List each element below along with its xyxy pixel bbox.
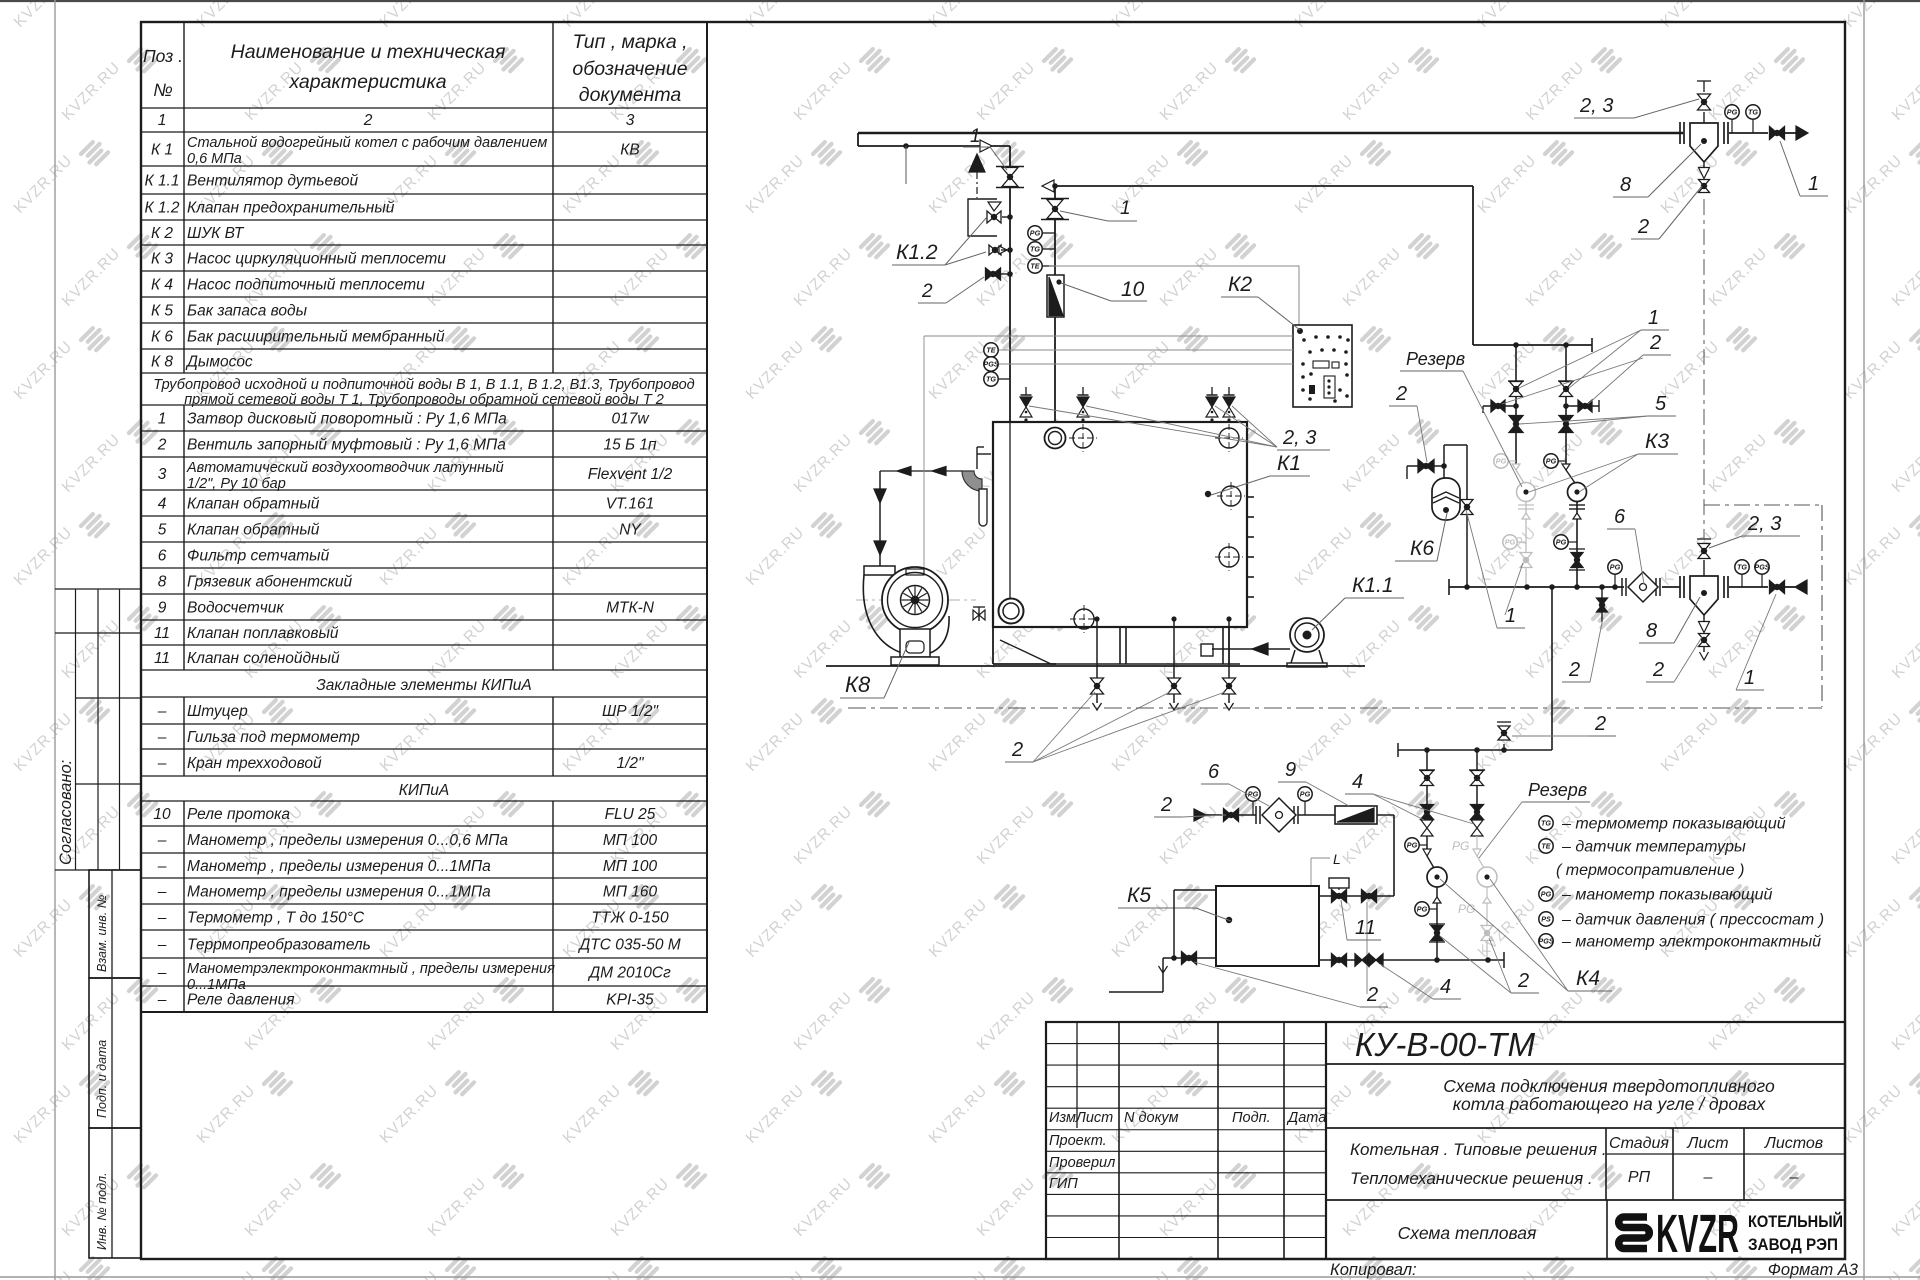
svg-text:К 2: К 2 xyxy=(151,225,173,242)
svg-text:PG: PG xyxy=(1610,563,1621,572)
svg-text:PG: PG xyxy=(1546,457,1557,466)
svg-text:8: 8 xyxy=(158,574,167,591)
svg-text:–: – xyxy=(157,937,167,954)
svg-text:Поз .: Поз . xyxy=(143,46,183,66)
svg-text:0,6 МПа: 0,6 МПа xyxy=(187,151,242,167)
svg-text:котла работающего на угле / др: котла работающего на угле / дровах xyxy=(1453,1094,1767,1114)
svg-text:ШУК ВТ: ШУК ВТ xyxy=(187,225,245,242)
svg-text:2: 2 xyxy=(157,437,167,454)
svg-text:Фильтр сетчатый: Фильтр сетчатый xyxy=(187,548,330,565)
svg-text:3: 3 xyxy=(626,112,635,129)
svg-text:11: 11 xyxy=(154,625,170,642)
svg-text:К3: К3 xyxy=(1645,430,1669,453)
svg-text:МП 100: МП 100 xyxy=(603,832,658,849)
svg-text:9: 9 xyxy=(1285,759,1296,781)
svg-text:–: – xyxy=(157,884,167,901)
svg-text:Манометрэлектроконтактный , п: Манометрэлектроконтактный , пределы изме… xyxy=(187,961,555,977)
svg-text:Клапан предохранительный: Клапан предохранительный xyxy=(187,200,395,217)
svg-text:К 1: К 1 xyxy=(151,142,173,159)
svg-text:–: – xyxy=(157,858,167,875)
svg-text:Стадия: Стадия xyxy=(1609,1135,1669,1152)
svg-text:TG: TG xyxy=(1541,819,1551,828)
svg-text:2: 2 xyxy=(1160,794,1172,816)
svg-text:К5: К5 xyxy=(1127,884,1151,907)
svg-text:РП: РП xyxy=(1628,1169,1651,1186)
svg-text:4: 4 xyxy=(158,496,167,513)
svg-text:– датчик температуры: – датчик температуры xyxy=(1561,839,1746,856)
svg-text:Манометр , пределы измерения: Манометр , пределы измерения 0...1МПа xyxy=(187,884,491,901)
svg-text:прямой сетевой воды Т 1, Тру: прямой сетевой воды Т 1, Трубопроводы об… xyxy=(184,392,664,408)
svg-text:характеристика: характеристика xyxy=(288,71,446,93)
svg-text:6: 6 xyxy=(1614,506,1626,528)
svg-text:К 8: К 8 xyxy=(151,354,173,371)
svg-text:2: 2 xyxy=(1594,713,1606,735)
svg-text:11: 11 xyxy=(1355,917,1376,939)
svg-text:VT.161: VT.161 xyxy=(606,496,655,513)
svg-text:KVZR: KVZR xyxy=(1656,1204,1739,1264)
svg-text:PG: PG xyxy=(1300,790,1311,799)
svg-text:2: 2 xyxy=(1517,970,1529,992)
svg-text:Подп.: Подп. xyxy=(1232,1110,1271,1126)
svg-text:PG: PG xyxy=(1030,229,1041,238)
svg-text:Тепломеханические решения .: Тепломеханические решения . xyxy=(1350,1169,1593,1188)
svg-text:–: – xyxy=(1789,1169,1799,1186)
svg-text:9: 9 xyxy=(158,600,167,617)
svg-text:Насос подпиточный теплосети: Насос подпиточный теплосети xyxy=(187,277,425,294)
svg-text:Штуцер: Штуцер xyxy=(187,703,248,720)
svg-text:Формат А3: Формат А3 xyxy=(1768,1261,1859,1279)
svg-text:NY: NY xyxy=(619,522,642,539)
svg-text:К 4: К 4 xyxy=(151,277,173,294)
svg-text:К 5: К 5 xyxy=(151,303,173,320)
svg-text:Клапан поплавковый: Клапан поплавковый xyxy=(187,625,339,642)
svg-text:– манометр показывающий: – манометр показывающий xyxy=(1561,887,1773,904)
svg-text:–: – xyxy=(157,832,167,849)
svg-text:1: 1 xyxy=(158,411,167,428)
svg-text:МП 160: МП 160 xyxy=(603,884,658,901)
svg-text:PGS: PGS xyxy=(1538,937,1553,946)
svg-text:К1.1: К1.1 xyxy=(1352,574,1394,597)
svg-text:PGS: PGS xyxy=(1754,563,1769,572)
svg-text:Схема тепловая: Схема тепловая xyxy=(1398,1223,1537,1243)
svg-text:Проект.: Проект. xyxy=(1049,1133,1107,1149)
svg-text:4: 4 xyxy=(1440,976,1451,998)
svg-text:Бак расширительный мембранный: Бак расширительный мембранный xyxy=(187,329,445,346)
svg-text:ДМ 2010Сг: ДМ 2010Сг xyxy=(587,965,671,982)
svg-text:10: 10 xyxy=(1121,278,1145,301)
svg-text:2: 2 xyxy=(1366,984,1378,1006)
svg-text:PGS: PGS xyxy=(983,360,998,369)
svg-text:Водосчетчик: Водосчетчик xyxy=(187,600,284,617)
svg-text:2, 3: 2, 3 xyxy=(1579,95,1613,117)
svg-text:15 Б 1п: 15 Б 1п xyxy=(603,437,657,454)
svg-text:Схема подключения твердотоплив: Схема подключения твердотопливного xyxy=(1443,1076,1775,1096)
svg-text:N докум: N докум xyxy=(1124,1110,1179,1126)
svg-text:8: 8 xyxy=(1646,620,1657,642)
svg-text:КУ-В-00-ТМ: КУ-В-00-ТМ xyxy=(1355,1026,1536,1063)
svg-text:2: 2 xyxy=(1011,739,1023,761)
svg-text:Лист: Лист xyxy=(1686,1135,1728,1152)
svg-text:2: 2 xyxy=(1568,659,1580,681)
svg-text:L: L xyxy=(1333,851,1341,867)
svg-text:PS: PS xyxy=(1541,915,1551,924)
svg-text:–: – xyxy=(157,755,167,772)
svg-text:Дата: Дата xyxy=(1286,1110,1326,1126)
svg-text:PG: PG xyxy=(1505,538,1516,547)
svg-text:Грязевик абонентский: Грязевик абонентский xyxy=(187,574,353,591)
svg-text:ГИП: ГИП xyxy=(1049,1176,1078,1192)
svg-text:ДТС 035-50 М: ДТС 035-50 М xyxy=(577,937,680,954)
svg-text:К1.2: К1.2 xyxy=(896,241,938,264)
svg-text:Подп. и дата: Подп. и дата xyxy=(95,1040,109,1118)
svg-text:№: № xyxy=(153,80,173,100)
svg-text:TE: TE xyxy=(1541,842,1550,851)
svg-text:PG: PG xyxy=(1417,905,1428,914)
svg-text:К6: К6 xyxy=(1410,537,1434,560)
svg-text:– термометр показывающий: – термометр показывающий xyxy=(1561,816,1786,833)
svg-text:2, 3: 2, 3 xyxy=(1282,427,1316,449)
svg-text:2: 2 xyxy=(1395,383,1407,405)
svg-text:К 3: К 3 xyxy=(151,251,173,268)
svg-text:Манометр , пределы измерения: Манометр , пределы измерения 0...1МПа xyxy=(187,858,491,875)
svg-text:МТК-N: МТК-N xyxy=(606,600,655,617)
svg-text:Копировал:: Копировал: xyxy=(1330,1261,1417,1279)
svg-text:4: 4 xyxy=(1352,771,1363,793)
svg-text:– манометр электроконтактный: – манометр электроконтактный xyxy=(1561,934,1821,951)
svg-text:TG: TG xyxy=(1748,108,1758,117)
svg-text:Flexvent 1/2: Flexvent 1/2 xyxy=(588,466,673,483)
svg-text:Проверил: Проверил xyxy=(1049,1155,1115,1171)
svg-text:PG: PG xyxy=(1496,457,1507,466)
svg-text:Стальной водогрейный котел с р: Стальной водогрейный котел с рабочим дав… xyxy=(187,135,547,151)
svg-text:–: – xyxy=(1703,1169,1713,1186)
svg-text:6: 6 xyxy=(1208,761,1220,783)
svg-text:2: 2 xyxy=(1637,216,1649,238)
svg-text:–: – xyxy=(157,910,167,927)
svg-text:Клапан соленойдный: Клапан соленойдный xyxy=(187,650,340,667)
svg-text:– датчик давления ( прессост: – датчик давления ( прессостат ) xyxy=(1561,912,1824,929)
svg-text:Листов: Листов xyxy=(1764,1135,1823,1152)
svg-text:KPI-35: KPI-35 xyxy=(606,992,654,1009)
svg-text:6: 6 xyxy=(158,548,167,565)
svg-text:PG: PG xyxy=(1452,839,1469,853)
svg-text:TE: TE xyxy=(986,346,995,355)
svg-text:Затвор дисковый поворотный :: Затвор дисковый поворотный : Ру 1,6 МПа xyxy=(187,411,507,428)
svg-text:Манометр , пределы измерения: Манометр , пределы измерения 0...0,6 МПа xyxy=(187,832,508,849)
svg-text:документа: документа xyxy=(579,84,682,106)
svg-text:Кран трехходовой: Кран трехходовой xyxy=(187,755,322,772)
svg-text:ЗАВОД РЭП: ЗАВОД РЭП xyxy=(1748,1235,1838,1254)
svg-text:Реле протока: Реле протока xyxy=(187,806,290,823)
svg-text:Насос циркуляционный теплосети: Насос циркуляционный теплосети xyxy=(187,251,446,268)
svg-text:1: 1 xyxy=(1648,307,1659,329)
svg-text:К1: К1 xyxy=(1277,452,1301,475)
svg-text:1/2", Ру 10 бар: 1/2", Ру 10 бар xyxy=(187,476,286,492)
svg-text:К8: К8 xyxy=(845,672,871,697)
svg-text:–: – xyxy=(157,965,167,982)
svg-text:3: 3 xyxy=(158,466,167,483)
svg-text:К2: К2 xyxy=(1228,273,1252,296)
svg-text:1: 1 xyxy=(158,112,167,129)
svg-text:FLU 25: FLU 25 xyxy=(605,806,656,823)
svg-text:Террмопреобразователь: Террмопреобразователь xyxy=(187,937,371,954)
svg-text:PG: PG xyxy=(1407,841,1418,850)
svg-text:2: 2 xyxy=(363,112,373,129)
svg-text:К 1.2: К 1.2 xyxy=(145,200,180,217)
svg-text:обозначение: обозначение xyxy=(572,58,687,80)
svg-text:8: 8 xyxy=(1620,174,1631,196)
svg-text:Резерв: Резерв xyxy=(1528,780,1587,800)
svg-text:К 1.1: К 1.1 xyxy=(145,173,180,190)
svg-text:К4: К4 xyxy=(1576,967,1600,990)
svg-text:2: 2 xyxy=(921,281,933,302)
svg-text:ИзмЛист: ИзмЛист xyxy=(1049,1110,1113,1126)
svg-text:017w: 017w xyxy=(611,411,650,428)
svg-text:Клапан обратный: Клапан обратный xyxy=(187,496,320,513)
svg-text:Закладные элементы КИПиА: Закладные элементы КИПиА xyxy=(316,677,532,694)
svg-text:Гильза под термометр: Гильза под термометр xyxy=(187,729,360,746)
svg-text:2: 2 xyxy=(1652,659,1664,681)
svg-text:Котельная . Типовые решения .: Котельная . Типовые решения . xyxy=(1350,1140,1607,1159)
svg-text:КВ: КВ xyxy=(620,142,639,159)
svg-text:1: 1 xyxy=(1808,173,1819,195)
svg-text:К 6: К 6 xyxy=(151,329,173,346)
svg-text:КОТЕЛЬНЫЙ: КОТЕЛЬНЫЙ xyxy=(1748,1212,1843,1231)
svg-text:1: 1 xyxy=(1120,198,1131,219)
svg-text:PG: PG xyxy=(1556,538,1567,547)
svg-text:TE: TE xyxy=(1030,262,1039,271)
svg-text:Автоматический воздухоотводчик: Автоматический воздухоотводчик латунный xyxy=(186,460,504,476)
svg-text:Вентилятор дутьевой: Вентилятор дутьевой xyxy=(187,173,359,190)
svg-text:Клапан обратный: Клапан обратный xyxy=(187,522,320,539)
svg-text:Термометр , Т до 150°С: Термометр , Т до 150°С xyxy=(187,910,365,927)
svg-text:PG: PG xyxy=(1458,902,1475,916)
svg-text:1: 1 xyxy=(1505,605,1516,627)
svg-text:Согласовано:: Согласовано: xyxy=(57,760,75,865)
svg-text:Реле давления: Реле давления xyxy=(187,992,295,1009)
svg-text:1/2": 1/2" xyxy=(616,755,645,772)
svg-text:Взам. инв. №: Взам. инв. № xyxy=(95,894,109,972)
svg-text:TG: TG xyxy=(1737,563,1747,572)
svg-text:КИПиА: КИПиА xyxy=(399,782,449,799)
svg-text:2, 3: 2, 3 xyxy=(1747,513,1781,535)
svg-text:Наименование и техническая: Наименование и техническая xyxy=(231,41,506,63)
svg-text:10: 10 xyxy=(153,806,171,823)
svg-text:Бак запаса воды: Бак запаса воды xyxy=(187,303,308,320)
svg-text:( термосопративление ): ( термосопративление ) xyxy=(1556,862,1744,879)
svg-text:2: 2 xyxy=(1649,332,1661,354)
svg-text:PG: PG xyxy=(1727,108,1738,117)
svg-text:5: 5 xyxy=(1655,393,1667,415)
svg-text:11: 11 xyxy=(154,650,170,667)
svg-text:ШР 1/2": ШР 1/2" xyxy=(602,703,659,720)
svg-text:Вентиль запорный муфтовый : Р: Вентиль запорный муфтовый : Ру 1,6 МПа xyxy=(187,437,506,454)
svg-text:–: – xyxy=(157,703,167,720)
svg-text:Дымосос: Дымосос xyxy=(185,354,253,371)
svg-text:TG: TG xyxy=(986,375,996,384)
svg-text:МП 100: МП 100 xyxy=(603,858,658,875)
svg-text:ТТЖ 0-150: ТТЖ 0-150 xyxy=(591,910,669,927)
svg-text:Трубопровод исходной и подпито: Трубопровод исходной и подпиточной воды … xyxy=(153,377,694,393)
svg-text:Инв. № подл.: Инв. № подл. xyxy=(95,1172,109,1250)
svg-text:5: 5 xyxy=(158,522,167,539)
svg-text:Резерв: Резерв xyxy=(1406,349,1465,369)
svg-text:TG: TG xyxy=(1030,245,1040,254)
svg-text:1: 1 xyxy=(970,126,981,147)
svg-text:1: 1 xyxy=(1744,667,1755,689)
svg-text:–: – xyxy=(157,729,167,746)
svg-text:PG: PG xyxy=(1541,890,1552,899)
svg-text:Тип , марка ,: Тип , марка , xyxy=(572,31,687,53)
svg-text:–: – xyxy=(157,992,167,1009)
